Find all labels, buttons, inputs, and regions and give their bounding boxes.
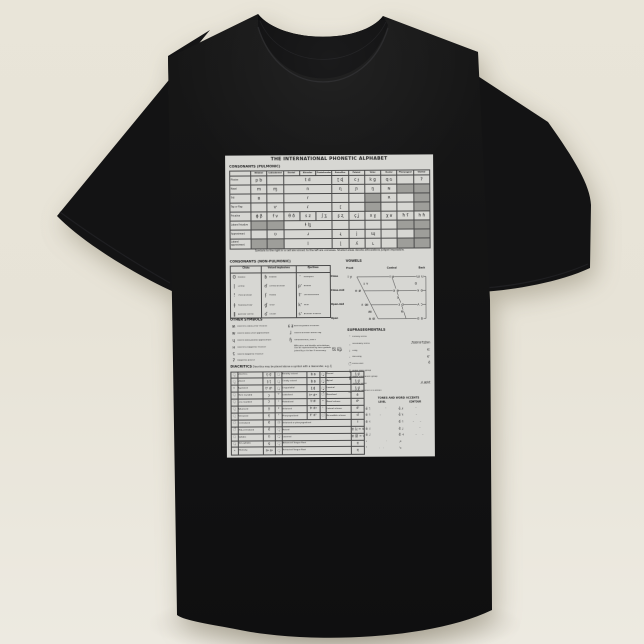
pulmonic-cell: ʎ [349, 239, 365, 249]
pulmonic-cell: ʈ ɖ [332, 175, 348, 184]
ipa-symbol: ʼ [296, 275, 303, 279]
pulmonic-cell: ʀ [381, 193, 397, 202]
pulmonic-cell [349, 221, 365, 230]
tone-mark-contour: ě ˩˥ [399, 407, 411, 410]
symbol-name: Alveolar fricative [304, 313, 321, 315]
nonpulmonic-row: ɗDental/alveolar [262, 282, 295, 291]
ipa-symbol: ʄ [262, 294, 269, 298]
pulmonic-cell [348, 202, 364, 211]
pulmonic-cell: f v [267, 212, 283, 221]
pulmonic-cell: ç ʝ [349, 211, 365, 220]
symbol-name: Velar [269, 304, 274, 306]
ipa-symbol: ǃ [231, 294, 238, 298]
impossible-cell [365, 202, 381, 211]
impossible-cell [414, 220, 430, 229]
tone-mark-contour: ↗ [399, 440, 411, 443]
symbol-name: Dental [238, 286, 245, 288]
pulmonic-cell: ʋ [267, 230, 283, 239]
symbol-name: Half-long [352, 356, 361, 358]
tone-name-contour: Low rising [411, 428, 432, 430]
symbol-name: Uvular [269, 313, 276, 315]
pulmonic-row-label: Fricative [230, 212, 251, 221]
tone-name-contour: Global fall [411, 447, 432, 449]
pulmonic-cell: ɱ [267, 185, 283, 194]
vowel-row-label: Open [331, 317, 338, 319]
tone-mark-contour: ↘ [399, 447, 411, 450]
symbol-example: ɹi.ækt [419, 382, 430, 385]
symbol-name: (Post)alveolar [238, 295, 252, 297]
vowel-pair: e ø [355, 288, 361, 292]
ipa-symbol: ʛ [262, 312, 269, 316]
tone-name-level: High [378, 415, 399, 417]
tone-name-level: Extra high [378, 408, 399, 410]
tone-rows: e̋ ˥Extra highě ˩˥Risingé ˦Highê ˥˩Falli… [366, 405, 432, 452]
pulmonic-cell [251, 230, 267, 239]
vowel-pair: ʊ [414, 282, 417, 286]
pulmonic-cell: ɳ [332, 184, 348, 193]
tones-contour-header: CONTOUR [399, 402, 432, 404]
nonpulmonic-row: pʼBilabial [297, 282, 330, 291]
tone-mark-level: ē ˧ [366, 421, 378, 424]
nonpulmonic-row: ɓBilabial [262, 273, 295, 282]
symbol-name: Voiceless epiglottal fricative [237, 346, 266, 348]
pulmonic-cell: ɲ [348, 184, 364, 193]
impossible-cell [251, 239, 267, 249]
diacritic-name: Rhoticity [238, 447, 263, 454]
other-symbols-right-column: ɕ ʑAlveolo-palatal fricativesɺVoiced alv… [287, 323, 348, 364]
pulmonic-row-label: Plosive [230, 176, 251, 185]
pulmonic-cell: k ɡ [365, 175, 381, 184]
pulmonic-cell: χ ʁ [381, 211, 397, 220]
pulmonic-cell: s z [300, 212, 316, 221]
impossible-cell [414, 238, 430, 248]
ipa-symbol: ʘ [231, 276, 238, 280]
pulmonic-cell: ʃ ʒ [316, 212, 332, 221]
pulmonic-cell: ɾ [283, 203, 332, 212]
pulmonic-cell [381, 220, 397, 229]
vowel-row-label: Close-mid [331, 289, 344, 291]
pulmonic-cell: θ ð [283, 212, 299, 221]
ipa-symbol: ǂ [231, 303, 238, 307]
pulmonic-row-label: Trill [230, 194, 251, 203]
ipa-symbol: ɗ [262, 285, 269, 289]
pulmonic-cell: t d [283, 175, 332, 184]
pulmonic-row-label: Lateral approximant [230, 239, 251, 249]
symbol-name: Linking (absence of a break) [353, 389, 382, 391]
nonpulmonic-column: ClicksʘBilabialǀDentalǃ(Post)alveolarǂPa… [231, 266, 262, 317]
vowel-pair: a ɶ [368, 316, 375, 320]
pulmonic-cell [397, 229, 413, 238]
impossible-cell [414, 229, 430, 238]
vowel-pair: ɘ ɵ [393, 288, 399, 292]
affricates-note: Affricates and double articulations can … [294, 345, 331, 352]
tones-level-header: LEVEL [366, 402, 399, 404]
vowel-column-header: Central [387, 267, 397, 269]
vowels-section-label: VOWELS [346, 259, 362, 263]
symbol-name: Alveolar lateral [238, 313, 254, 315]
pulmonic-cell: l [284, 239, 333, 249]
tone-mark-contour: e᷄ ˦˥ [399, 420, 411, 423]
pulmonic-cell: ʙ [251, 194, 267, 203]
vowel-pair: ʌ ɔ [417, 302, 423, 306]
other-symbols-left-column: ʍVoiceless labial-velar fricativewVoiced… [230, 323, 287, 364]
pulmonic-cell [365, 220, 381, 229]
pulmonic-cell: x ɣ [365, 211, 381, 220]
symbol-name: Simultaneous ʃ and x [294, 339, 316, 341]
vowel-pair: ɜ ɞ [398, 302, 404, 306]
nonpulmonic-row: tʼDental/alveolar [297, 291, 330, 300]
pulmonic-cell [251, 203, 267, 212]
tone-name-level: Downstep [378, 441, 399, 443]
impossible-cell [397, 184, 413, 193]
pulmonic-cell: n [283, 185, 332, 194]
symbol-name: Bilabial [238, 277, 246, 279]
tone-row: ꜛUpstep↘Global fall [366, 445, 432, 452]
pulmonic-cell: j [349, 230, 365, 239]
impossible-cell [414, 202, 430, 211]
symbol-name: Palatoalveolar [238, 304, 253, 306]
suprasegmentals-list: ˈPrimary stressˌSecondary stressˌfoʊnəˈt… [347, 333, 430, 394]
ipa-symbol: ɺ [287, 331, 294, 335]
impossible-cell [267, 221, 283, 230]
tones-panel: TONES AND WORD ACCENTS LEVEL CONTOUR e̋ … [366, 397, 432, 452]
pulmonic-cell [397, 193, 413, 202]
nonpulmonic-row: ʘBilabial [231, 273, 261, 282]
pulmonic-cell: ʂ ʐ [332, 212, 348, 221]
nonpulmonic-row: ʼExamples: [296, 273, 329, 282]
pulmonic-cell: p b [251, 176, 267, 185]
pulmonic-cell [267, 176, 283, 185]
ipa-symbol: ʢ [230, 352, 237, 356]
ipa-symbol: w [230, 332, 237, 336]
pulmonic-cell [332, 193, 348, 202]
nonpulmonic-row: ʄPalatal [262, 291, 295, 300]
pulmonic-consonants-table: BilabialLabiodentalDentalAlveolarPostalv… [229, 169, 430, 249]
diacritic-example: e̙ [351, 447, 364, 454]
pulmonic-cell: ħ ʕ [397, 211, 413, 220]
vowel-pair: ɛ œ [361, 302, 369, 306]
other-symbol-row: ʡEpiglottal plosive [230, 357, 287, 364]
tone-name-level: Mid [378, 421, 399, 423]
impossible-cell [365, 193, 381, 202]
impossible-cell [413, 193, 429, 202]
symbol-name: Major (intonation) group [352, 376, 377, 378]
pulmonic-cell: q ɢ [381, 175, 397, 184]
vowel-pair: æ [368, 309, 372, 313]
vowel-row-label: Close [331, 275, 338, 277]
symbol-name: Secondary stress [352, 343, 370, 345]
impossible-cell [413, 184, 429, 193]
tone-mark-contour: ê ˥˩ [399, 414, 411, 417]
pulmonic-row-label: Nasal [230, 185, 251, 194]
symbol-name: Examples: [304, 276, 315, 278]
nonpulmonic-row: ǃ(Post)alveolar [231, 291, 261, 300]
vowel-pair: ə [396, 295, 399, 299]
symbol-name: Long [352, 350, 357, 352]
nonpulmonic-consonants-table: ClicksʘBilabialǀDentalǃ(Post)alveolarǂPa… [230, 264, 331, 318]
ipa-symbol: ɠ [262, 303, 269, 307]
ipa-symbol: ǀ [231, 285, 238, 289]
symbol-name: Voiced labial-palatal approximant [237, 339, 271, 341]
symbol-name: Dental/alveolar [269, 286, 285, 288]
pulmonic-row-label: Tap or Flap [230, 203, 251, 212]
impossible-cell [397, 220, 413, 229]
vowel-row-label: Open-mid [331, 303, 344, 305]
product-photo-backdrop: THE INTERNATIONAL PHONETIC ALPHABET CONS… [0, 0, 644, 644]
vowel-quadrilateral: i yɨ ʉɯ uɪ ʏʊe øɘ ɵɤ oəɛ œɜ ɞʌ ɔæɐa ɶɑ ɒ… [330, 265, 430, 328]
ipa-symbol: pʼ [297, 284, 304, 288]
vowel-pair: ɪ ʏ [363, 282, 369, 286]
ipa-symbol: ɕ ʑ [287, 325, 294, 329]
vowel-pair: ɨ ʉ [389, 274, 394, 278]
symbol-name: Alveolo-palatal fricatives [294, 325, 319, 327]
tone-mark-level: é ˦ [366, 414, 378, 417]
diacritics-caption-text: Diacritics may be placed above a symbol … [253, 365, 332, 368]
symbol-example: ĕ [427, 362, 430, 365]
symbol-name: Velar [304, 304, 309, 306]
symbol-name: Voiced alveolar lateral flap [294, 332, 321, 334]
diacritics-table: ◌̥Voicelessn̥ d̥◌̤Breathy voicedb̤ a̤◌̪D… [230, 370, 364, 455]
nonpulmonic-row: ʛUvular [262, 309, 295, 318]
tone-name-contour: Global rise [411, 441, 432, 443]
tone-name-level: Upstep [378, 448, 399, 450]
tone-name-level: Extra low [378, 434, 399, 436]
symbol-name: Voiced labial-velar approximant [237, 333, 269, 335]
diacritic-name: Retracted Tongue Root [282, 447, 351, 454]
tone-mark-contour: e᷈ ˧˦˧ [399, 434, 411, 437]
chart-title: THE INTERNATIONAL PHONETIC ALPHABET [225, 157, 433, 163]
tone-name-contour: Rising-falling [411, 434, 432, 436]
pulmonic-cell: ɬ ɮ [284, 221, 333, 230]
ipa-symbol: ɧ [287, 338, 294, 342]
symbol-name: Minor (foot) group [352, 370, 371, 372]
symbol-name: Bilabial [304, 285, 312, 287]
tone-mark-level: ꜛ [366, 447, 378, 450]
symbol-name: Extra-short [352, 363, 363, 365]
nonpulmonic-column: Voiced implosivesɓBilabialɗDental/alveol… [261, 266, 296, 317]
nonpulmonic-row: ǀDental [231, 282, 261, 291]
nonpulmonic-row: sʼAlveolar fricative [297, 309, 330, 318]
pulmonic-cell [397, 175, 413, 184]
pulmonic-cell: r [283, 194, 332, 203]
pulmonic-cell [397, 202, 413, 211]
suprasegmentals-label: SUPRASEGMENTALS [347, 329, 385, 333]
pulmonic-cell [381, 229, 397, 238]
ipa-symbol: ʡ [230, 359, 237, 363]
nonpulmonic-row: ɠVelar [262, 300, 295, 309]
pulmonic-section-label: CONSONANTS (PULMONIC) [229, 165, 280, 169]
pulmonic-cell: ɴ [381, 184, 397, 193]
pulmonic-cell [267, 194, 283, 203]
vowel-column-header: Front [346, 267, 353, 269]
symbol-name: Bilabial [269, 276, 277, 278]
tone-name-contour: Falling [411, 414, 432, 416]
tone-name-level: Low [378, 428, 399, 430]
impossible-cell [251, 221, 267, 230]
ipa-symbol: ɓ [262, 275, 269, 279]
ipa-symbol: ʍ [230, 325, 237, 329]
vowel-column-header: Back [419, 267, 425, 269]
vowel-pair: i y [347, 274, 352, 278]
tone-mark-level: e̋ ˥ [366, 407, 378, 410]
other-symbols-label: OTHER SYMBOLS [230, 318, 263, 322]
symbol-example: ˌfoʊnəˈtɪʃən [410, 342, 430, 346]
tone-mark-level: ꜜ [366, 440, 378, 443]
tone-mark-level: ȅ ˩ [366, 434, 378, 437]
pulmonic-cell: ʟ [365, 239, 381, 249]
tone-mark-contour: e᷅ ˩˨ [399, 427, 411, 430]
symbol-name: Primary stress [352, 336, 367, 338]
impossible-cell [397, 238, 413, 248]
ipa-symbol: ɥ [230, 339, 237, 343]
pulmonic-cell: ɭ [332, 239, 348, 249]
pulmonic-cell: ɸ β [251, 212, 267, 221]
ipa-symbol: ʜ [230, 345, 237, 349]
symbol-example: eː [426, 348, 430, 351]
ipa-symbol: kʼ [297, 303, 304, 307]
symbol-example: eˑ [426, 355, 430, 358]
impossible-cell [267, 239, 283, 249]
affricates-examples: t͡s k͡p [332, 348, 342, 352]
symbol-name: Epiglottal plosive [237, 360, 255, 362]
symbol-name: Voiced epiglottal fricative [237, 353, 263, 355]
diacritic-example: ə˞ a˞ [263, 447, 276, 454]
ipa-symbol: ǁ [231, 312, 238, 316]
ipa-symbol: sʼ [297, 312, 304, 316]
nonpulmonic-row: ǂPalatoalveolar [231, 300, 261, 309]
vowel-pair: ɐ [401, 309, 404, 313]
diacritics-label: DIACRITICS [230, 365, 252, 369]
pulmonic-cell: ŋ [365, 184, 381, 193]
suprasegmental-row: ‿Linking (absence of a break) [347, 387, 430, 394]
vowel-pair: ɯ u [416, 274, 424, 278]
pulmonic-row: Lateral approximantlɭʎʟ [230, 238, 430, 249]
symbol-name: Dental/alveolar [304, 295, 320, 297]
vowel-pair: ɑ ɒ [417, 316, 424, 320]
pulmonic-cell: ⱱ [267, 203, 283, 212]
nonpulmonic-section-label: CONSONANTS (NON-PULMONIC) [230, 260, 291, 264]
diacritics-row: ˞Rhoticityə˞ a˞◌̙Retracted Tongue Roote̙ [231, 447, 364, 455]
tone-mark-level: è ˨ [366, 427, 378, 430]
pulmonic-cell [381, 238, 397, 248]
pulmonic-footnote: Symbols to the right in a cell are voice… [230, 249, 430, 253]
pulmonic-cell: ɽ [332, 203, 348, 212]
pulmonic-row-label: Lateral fricative [230, 221, 251, 230]
pulmonic-cell [348, 193, 364, 202]
tone-name-contour: High rising [411, 421, 432, 423]
tone-name-contour: Rising [411, 408, 432, 410]
pulmonic-cell: ʔ [413, 175, 429, 184]
pulmonic-cell: h ɦ [414, 211, 430, 220]
ipa-chart-print: THE INTERNATIONAL PHONETIC ALPHABET CONS… [225, 154, 435, 457]
symbol-name: Syllable break [352, 383, 366, 385]
symbol-name: Voiceless labial-velar fricative [237, 326, 267, 328]
nonpulmonic-column: EjectivesʼExamples:pʼBilabialtʼDental/al… [295, 266, 330, 317]
pulmonic-cell: m [251, 185, 267, 194]
pulmonic-cell [381, 202, 397, 211]
symbol-name: Palatal [269, 295, 276, 297]
other-symbol-row: ɧSimultaneous ʃ and x [287, 336, 348, 343]
pulmonic-cell: ɻ [332, 230, 348, 239]
pulmonic-row-label: Approximant [230, 230, 251, 239]
nonpulmonic-row: kʼVelar [297, 300, 330, 309]
ipa-symbol: tʼ [297, 294, 304, 298]
vowel-pair: ɤ o [417, 288, 423, 292]
pulmonic-cell [332, 221, 348, 230]
pulmonic-cell: ɰ [365, 229, 381, 238]
pulmonic-cell: ɹ [284, 230, 333, 239]
other-symbols-list: ʍVoiceless labial-velar fricativewVoiced… [230, 323, 348, 365]
pulmonic-cell: c ɟ [348, 175, 364, 184]
